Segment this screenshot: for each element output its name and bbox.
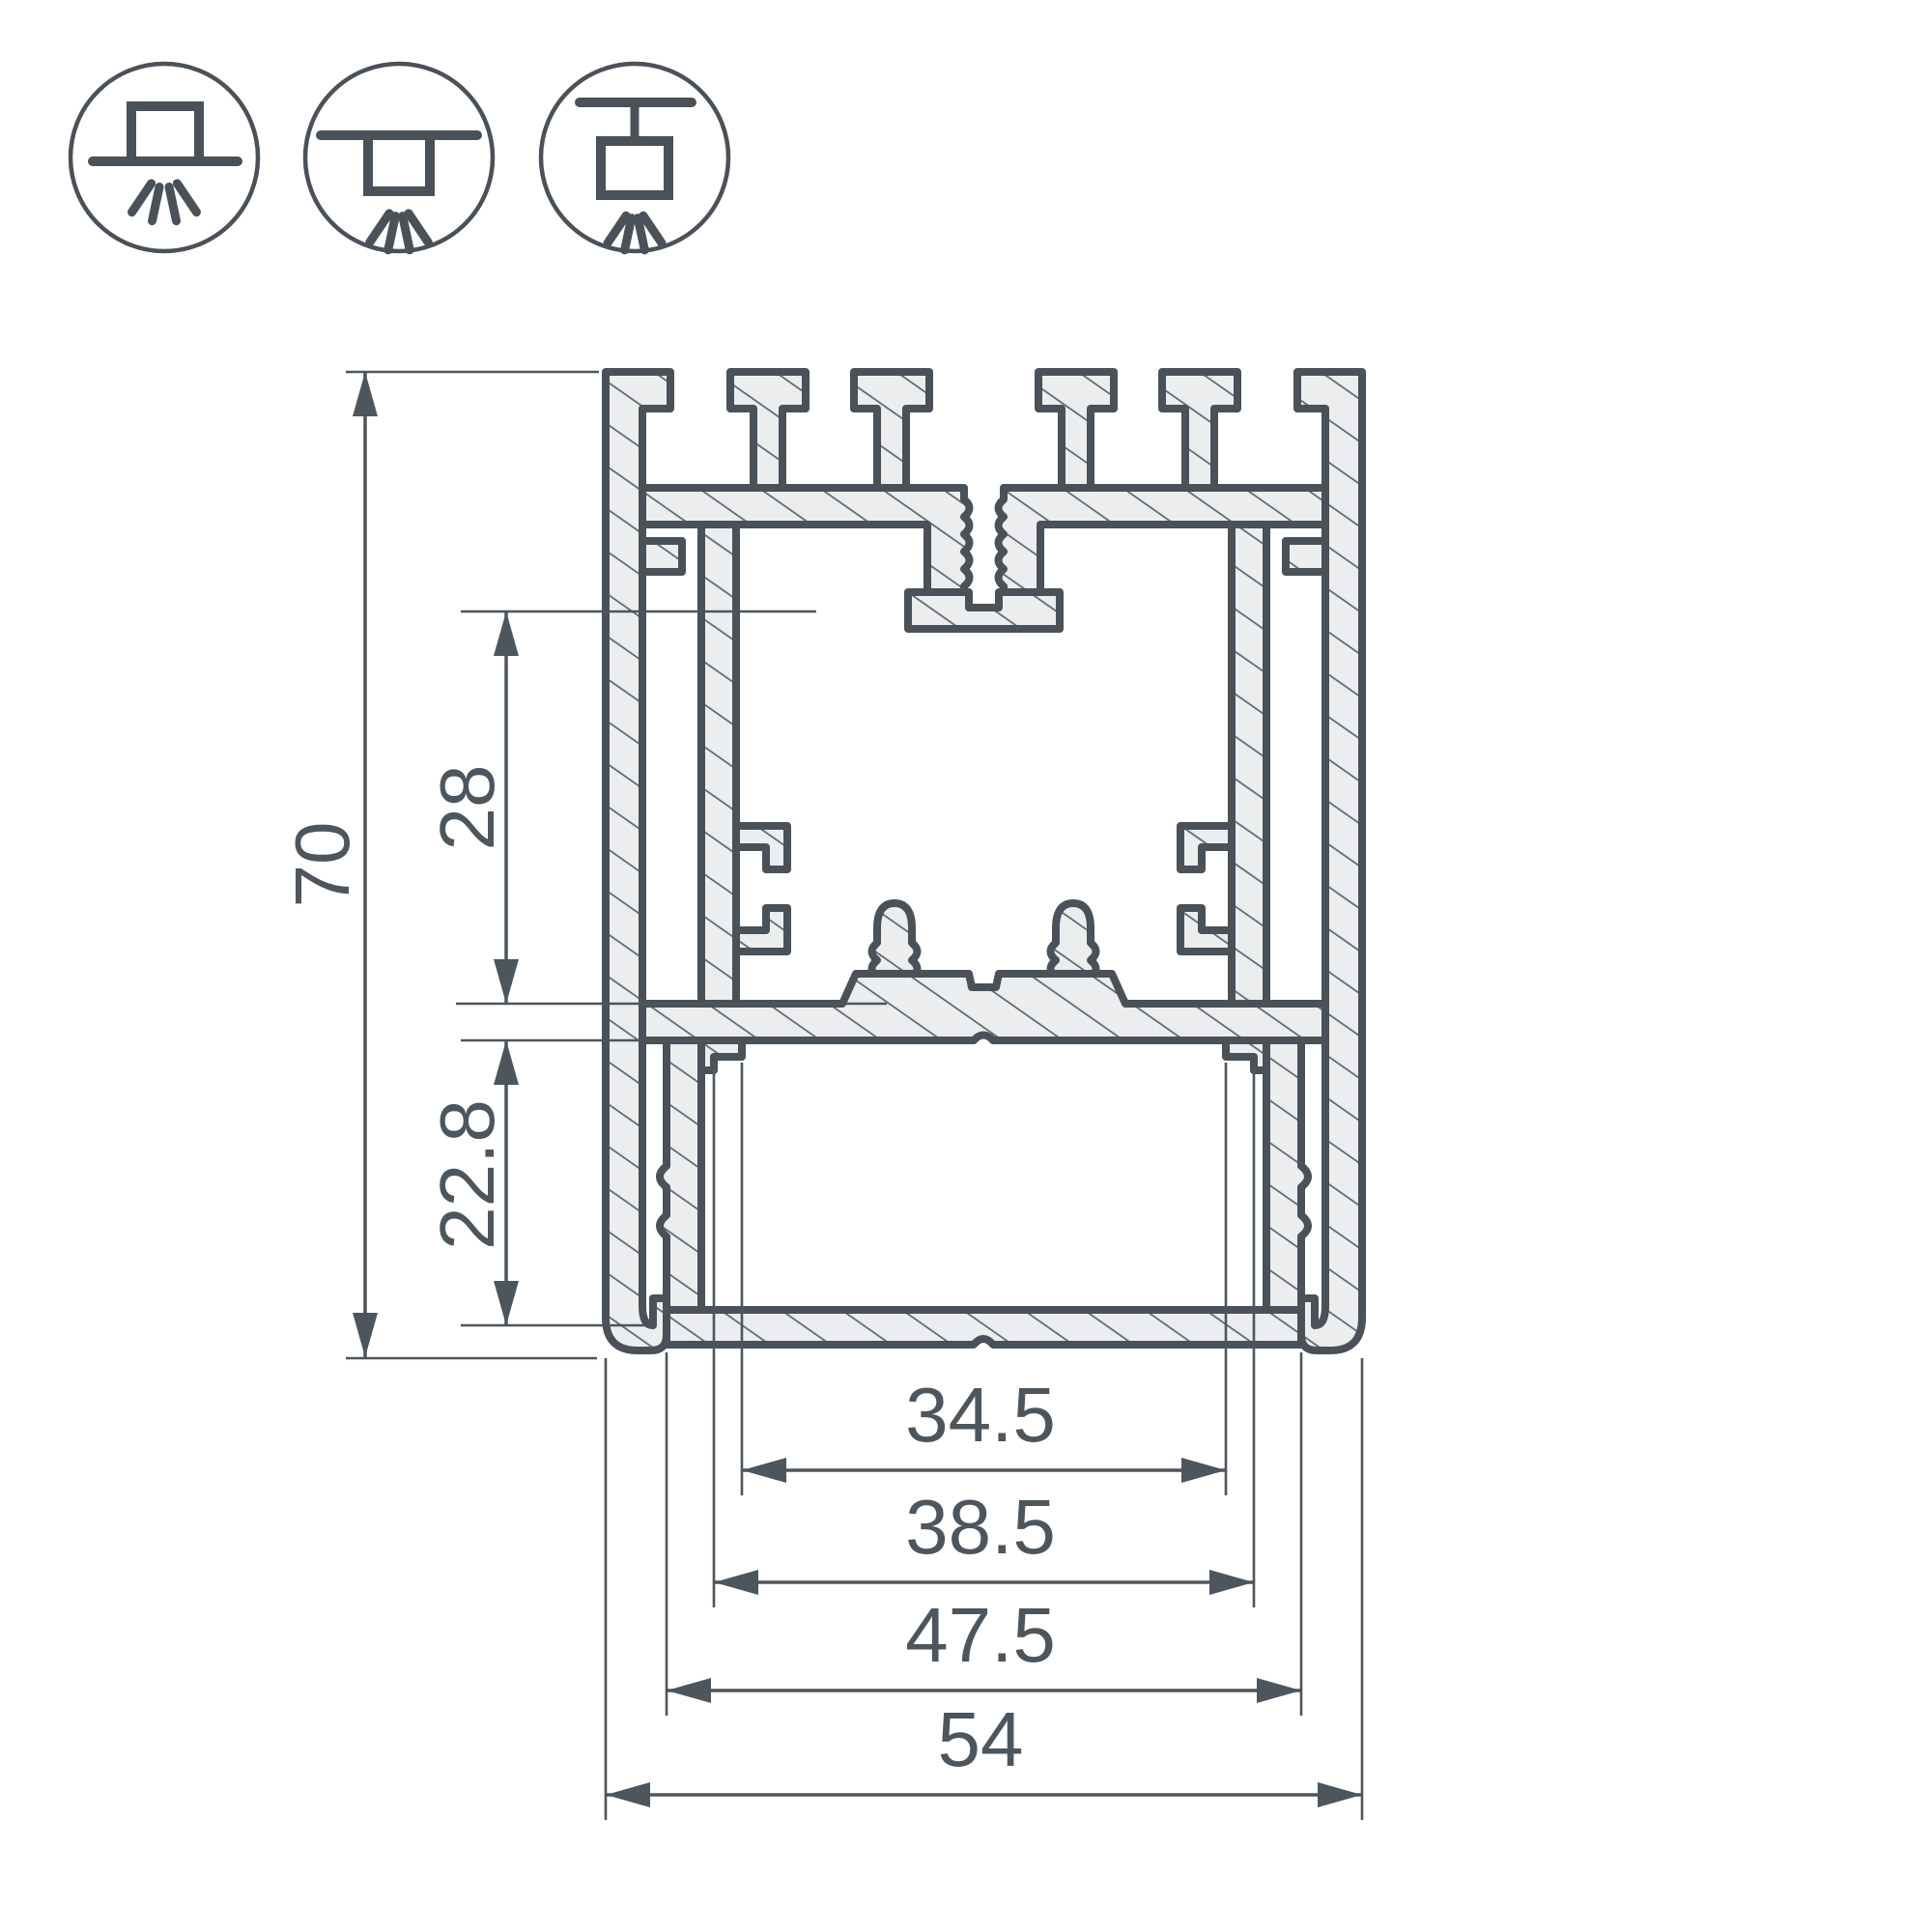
profile-cross-section — [606, 372, 1362, 1350]
right-partition-lip — [1180, 826, 1232, 869]
top-web-right — [999, 488, 1326, 592]
dimension-label: 47.5 — [905, 1592, 1056, 1678]
right-partition-lip — [1180, 908, 1232, 952]
left-partition-lip — [736, 908, 787, 952]
left-spring-wall — [660, 1040, 701, 1310]
right-wall-shelf — [1286, 541, 1325, 572]
arrowhead — [494, 1040, 519, 1085]
dimension-annotations: 702822.834.538.547.554 — [279, 372, 1362, 1820]
left-partition-lip — [736, 826, 787, 869]
arrowhead — [714, 1570, 758, 1595]
dimension-label: 28 — [424, 765, 510, 851]
top-tooth — [1162, 372, 1237, 488]
dimension-label: 70 — [279, 822, 365, 908]
arrowhead — [1257, 1678, 1301, 1703]
dimension-label: 38.5 — [905, 1484, 1056, 1570]
right-spring-wall — [1266, 1040, 1308, 1310]
right-partition — [1232, 525, 1266, 1004]
fixture-box — [131, 106, 199, 161]
dimension-label: 34.5 — [905, 1372, 1056, 1458]
fixture-box — [601, 141, 668, 195]
mounting-icons — [71, 64, 728, 251]
recessed-mount-icon — [305, 64, 493, 251]
mid-plate-lip-left — [701, 1040, 742, 1070]
arrowhead — [494, 1281, 519, 1325]
left-partition — [701, 525, 736, 1004]
top-tooth — [854, 372, 929, 488]
light-rays — [370, 213, 428, 250]
left-wall-shelf — [642, 541, 682, 572]
technical-drawing-page: 702822.834.538.547.554 — [0, 0, 1932, 1932]
arrowhead — [1181, 1458, 1226, 1483]
arrowhead — [606, 1782, 650, 1807]
light-rays — [608, 215, 662, 250]
icon-circle — [305, 64, 493, 251]
dimension-label: 22.8 — [424, 1099, 510, 1250]
arrowhead — [1209, 1570, 1254, 1595]
arrowhead — [742, 1458, 786, 1483]
arrowhead — [494, 611, 519, 656]
suspended-mount-icon — [541, 64, 728, 251]
arrowhead — [667, 1678, 711, 1703]
top-tooth — [730, 372, 806, 488]
fixture-box — [368, 135, 430, 191]
surface-mount-icon — [71, 64, 258, 251]
top-tooth — [1038, 372, 1114, 488]
arrowhead — [1318, 1782, 1362, 1807]
mid-plate — [642, 974, 1325, 1040]
arrowhead — [353, 1313, 378, 1357]
top-web-left — [642, 488, 970, 592]
arrowhead — [494, 959, 519, 1004]
profile-drawing: 702822.834.538.547.554 — [0, 0, 1932, 1932]
dimension-label: 54 — [938, 1696, 1024, 1782]
bottom-plate — [667, 1310, 1301, 1345]
screw-channel-plate — [908, 592, 1060, 629]
arrowhead — [353, 372, 378, 416]
mid-plate-lip-right — [1226, 1040, 1266, 1070]
light-rays — [132, 184, 197, 221]
